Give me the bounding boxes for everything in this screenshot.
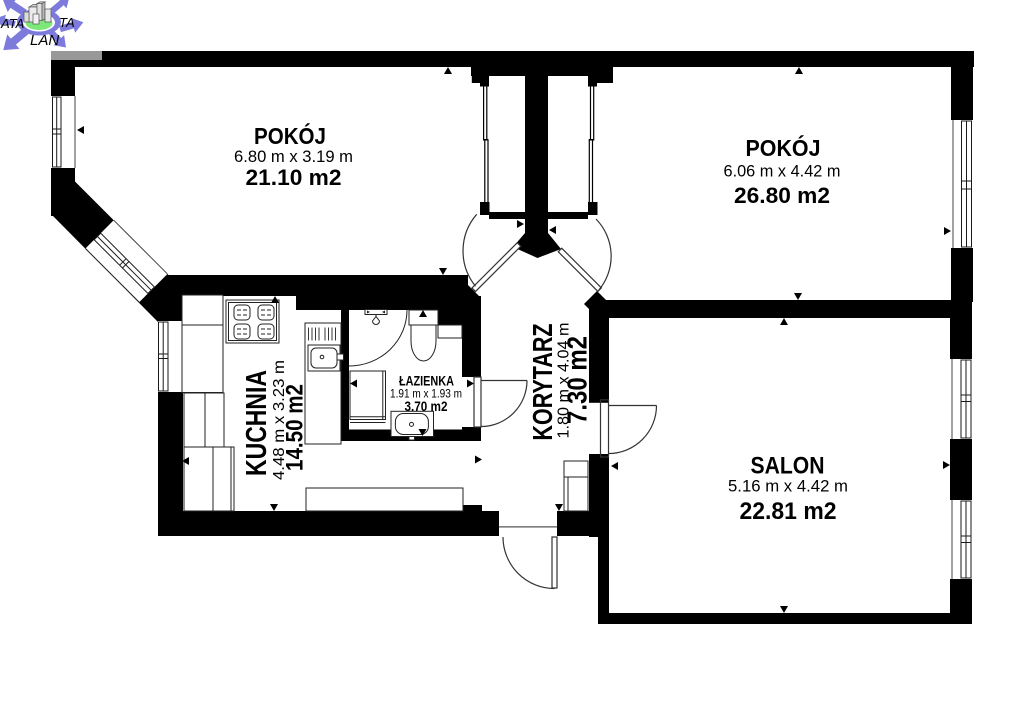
svg-text:26.80 m2: 26.80 m2 [734, 183, 830, 208]
svg-text:14.50 m2: 14.50 m2 [282, 384, 309, 471]
svg-text:21.10 m2: 21.10 m2 [246, 165, 342, 190]
svg-text:7.30 m2: 7.30 m2 [562, 336, 593, 424]
svg-text:LAN: LAN [30, 32, 59, 49]
svg-text:22.81 m2: 22.81 m2 [740, 498, 837, 525]
svg-text:KORYTARZ: KORYTARZ [527, 324, 558, 441]
svg-text:ŁAZIENKA: ŁAZIENKA [399, 373, 454, 389]
svg-text:6.80 m x 3.19 m: 6.80 m x 3.19 m [234, 148, 353, 166]
svg-text:ATA: ATA [0, 16, 24, 31]
svg-text:KUCHNIA: KUCHNIA [241, 370, 273, 476]
svg-text:6.06 m x 4.42 m: 6.06 m x 4.42 m [724, 163, 841, 181]
svg-text:SALON: SALON [751, 453, 825, 480]
svg-text:TA: TA [59, 15, 75, 30]
svg-text:POKÓJ: POKÓJ [746, 134, 821, 161]
svg-text:POKÓJ: POKÓJ [254, 122, 326, 149]
svg-text:5.16 m x 4.42 m: 5.16 m x 4.42 m [728, 478, 848, 496]
svg-text:3.70 m2: 3.70 m2 [405, 399, 448, 414]
